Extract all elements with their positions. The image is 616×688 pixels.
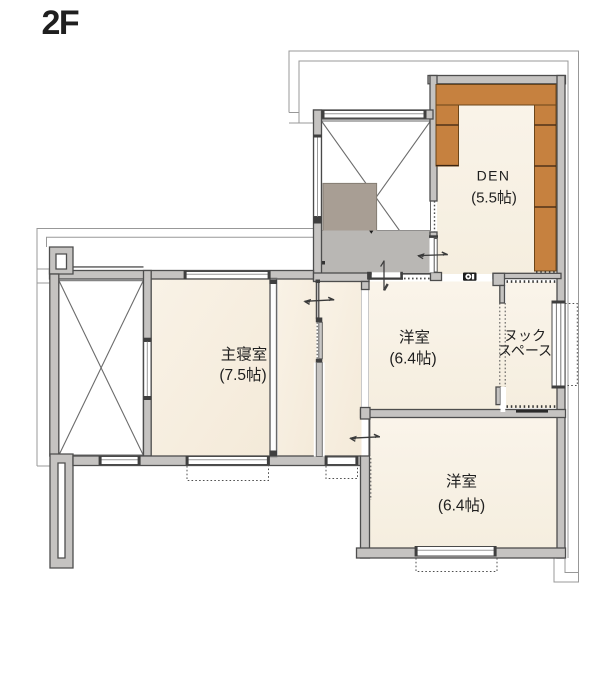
svg-text:主寝室: 主寝室 [221, 345, 268, 364]
svg-text:(5.5帖): (5.5帖) [471, 190, 517, 207]
svg-text:(6.4帖): (6.4帖) [438, 497, 485, 515]
svg-text:ヌック: ヌック [504, 328, 546, 344]
svg-text:洋室: 洋室 [399, 329, 430, 347]
svg-text:DEN: DEN [477, 168, 511, 184]
svg-text:(7.5帖): (7.5帖) [219, 366, 266, 384]
svg-text:スペース: スペース [498, 343, 552, 359]
svg-text:2F: 2F [42, 4, 79, 42]
svg-text:洋室: 洋室 [446, 473, 477, 491]
svg-text:(6.4帖): (6.4帖) [389, 350, 436, 368]
